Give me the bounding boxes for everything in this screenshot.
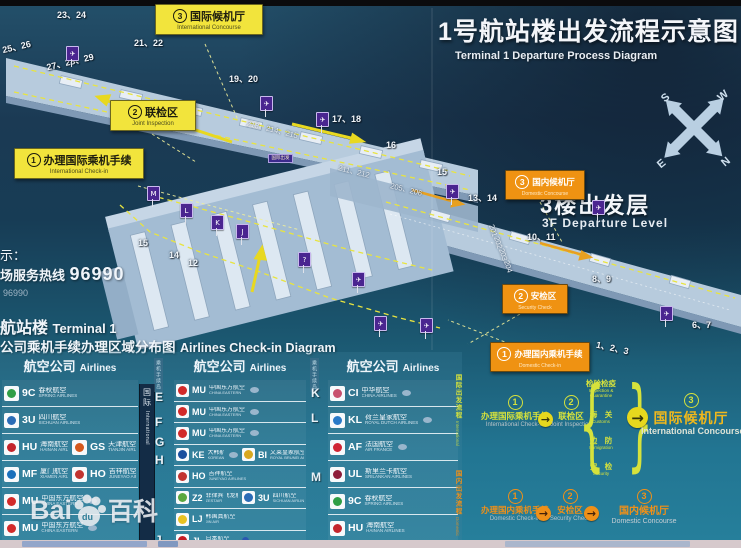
map-label-zh: 国内候机厅 <box>532 177 575 187</box>
airline-code: 9C <box>348 495 361 507</box>
airline-code: MU <box>192 407 206 417</box>
gate-number: 8、9 <box>592 272 611 285</box>
airline-cell: 3U四川航空SICHUAN AIRLINES <box>2 413 138 428</box>
information-sign-icon: ✈ <box>446 184 459 199</box>
gate-number: 6、7 <box>692 318 711 331</box>
airline-code: HO <box>90 468 106 480</box>
header-en: Airlines <box>80 363 117 374</box>
airline-logo-icon <box>176 513 189 526</box>
floor-label-en: 3F Departure Level <box>542 216 668 230</box>
joint-inspection-items: 检验检疫Inspection &Quarantine海 关Customs边 防I… <box>579 380 623 476</box>
brace-item-en: Immigration <box>579 445 623 450</box>
brace-item-en: Customs <box>579 419 623 424</box>
airline-code: Z2 <box>192 493 203 503</box>
brace-item-zh: 海 关 <box>579 411 623 419</box>
airline-name-en: CHINA EASTERN <box>209 434 245 438</box>
airline-name-en: HAINAN AIRLINES <box>366 529 405 534</box>
airline-logo-mark <box>333 497 342 506</box>
airlines-column-header: 航空公司Airlines <box>174 356 306 380</box>
airline-code: MU <box>192 428 206 438</box>
airline-name-en: TIANJIN AIRLINES <box>108 448 136 453</box>
airline-name-en: CHINA EASTERN <box>209 391 245 395</box>
map-label-dom-concourse: 3国内候机厅Domestic Concourse <box>505 170 585 200</box>
map-label-zh: 联检区 <box>145 107 178 119</box>
flow-step-number: 2 <box>564 395 579 410</box>
step-number: 3 <box>515 175 529 189</box>
flow-step-number: 1 <box>508 489 523 504</box>
hotline-label: 场服务热线 <box>0 268 65 283</box>
alliance-badge-icon <box>250 430 259 436</box>
information-sign-icon: ✈ <box>66 46 79 61</box>
flow-step-intl-3: 3国际候机厅International Concourse <box>641 390 741 437</box>
map-label-en: International Concourse <box>159 25 259 32</box>
gate-number: 13、14 <box>468 191 497 204</box>
header-zh: 航空公司 <box>24 359 76 374</box>
airline-names: 荷兰皇家航空ROYAL DUTCH AIRLINES <box>365 414 418 426</box>
airline-logo-mark <box>244 493 253 502</box>
flow-strip-zh: 国内出发流程 <box>454 470 461 515</box>
airline-logo-mark <box>178 429 187 438</box>
airline-row: MU中国东方航空CHINA EASTERN <box>174 380 306 402</box>
airline-names: 中国东方航空CHINA EASTERN <box>209 407 245 417</box>
airline-names: 海南航空HAINAN AIRLINES <box>40 441 68 453</box>
airline-logo-mark <box>178 407 187 416</box>
airline-names: 春秋航空SPRING AIRLINES <box>38 387 77 399</box>
header-zh: 航空公司 <box>194 359 246 374</box>
airline-logo-icon <box>176 448 189 461</box>
airline-cell: MU中国东方航空CHINA EASTERN <box>174 427 306 440</box>
map-label-zh: 国际候机厅 <box>190 11 245 23</box>
divider-label-zh: 国际 <box>142 388 153 408</box>
map-label-dom-security: 2安检区Security Check <box>502 284 568 314</box>
airline-logo-mark <box>7 470 16 479</box>
information-sign-icon: ✈ <box>260 96 273 111</box>
airline-name-en: JUNEYAO AIRLINES <box>109 475 136 480</box>
island-letter-sign: K <box>211 215 224 230</box>
map-label-en: International Check-in <box>18 169 140 176</box>
flow-step-dom-3: 3国内候机厅Domestic Concourse <box>600 486 688 526</box>
airline-code: MU <box>192 385 206 395</box>
airlines-column-header: 航空公司Airlines <box>328 356 458 380</box>
airline-logo-icon <box>4 386 19 401</box>
airline-cell: HU海南航空HAINAN AIRLINES <box>2 440 70 455</box>
airline-name-en: SPRING AIRLINES <box>364 502 403 507</box>
airline-names: 菲律宾飞龙航空ZESTAIR <box>206 493 238 503</box>
gate-number: 17、18 <box>332 112 361 125</box>
flow-step-en: International Concourse <box>641 426 741 436</box>
airline-names: 中国东方航空CHINA EASTERN <box>209 385 245 395</box>
airline-logo-mark <box>333 416 342 425</box>
brace-item-en: Security <box>579 471 623 476</box>
airline-names: 法国航空AIR FRANCE <box>365 441 393 453</box>
information-sign-icon: ✈ <box>660 306 673 321</box>
map-label-joint-inspection: 2联检区Joint Inspection <box>110 100 196 131</box>
airline-cell: UL斯里兰卡航空SRILANKAN AIRLINES <box>328 467 458 482</box>
airline-name-en: CHINA AIRLINES <box>362 394 397 399</box>
airlines-column-header: 航空公司Airlines <box>2 356 138 380</box>
flow-step-zh: 国际候机厅 <box>641 410 741 426</box>
island-letter: L <box>311 411 318 425</box>
airlines-column-2: 航空公司AirlinesMU中国东方航空CHINA EASTERNMU中国东方航… <box>174 356 306 548</box>
airline-logo-icon <box>176 427 189 440</box>
brace-item: 海 关Customs <box>579 411 623 424</box>
airline-code: MF <box>22 468 37 480</box>
step-number: 1 <box>27 153 41 167</box>
airline-code: HU <box>22 441 37 453</box>
alliance-badge-icon <box>398 444 407 450</box>
airline-name-en: HAINAN AIRLINES <box>40 448 68 453</box>
map-label-intl-concourse: 3国际候机厅International Concourse <box>155 4 263 35</box>
airline-logo-icon <box>72 440 87 455</box>
island-letter-sign: L <box>180 203 193 218</box>
airline-row: KL荷兰皇家航空ROYAL DUTCH AIRLINES <box>328 407 458 434</box>
airline-names: 吉祥航空JUNEYAO AIRLINES <box>209 471 247 481</box>
airline-logo-icon <box>330 440 345 455</box>
airline-code: UL <box>348 468 362 480</box>
airline-logo-mark <box>7 443 16 452</box>
airline-cell: KE大韩航空KOREAN AIR <box>174 448 240 461</box>
gate-number: 14 <box>169 250 179 260</box>
gate-number: 23、24 <box>57 8 86 21</box>
airline-names: 吉祥航空JUNEYAO AIRLINES <box>109 468 136 480</box>
map-label-zh: 办理国际乘机手续 <box>44 155 132 167</box>
island-letter-sign: M <box>147 186 160 201</box>
airline-code: KE <box>192 450 205 460</box>
flow-strip-zh: 国际出发流程 <box>454 374 461 419</box>
airline-logo-icon <box>330 386 345 401</box>
airline-cell: BI文莱皇家航空ROYAL BRUNEI AIRLINES <box>240 448 306 461</box>
airline-name-en: JIN AIR <box>206 520 236 524</box>
airline-logo-icon <box>176 470 189 483</box>
airline-logo-mark <box>7 416 16 425</box>
airline-row: AF法国航空AIR FRANCE <box>328 434 458 461</box>
airline-logo-mark <box>7 497 16 506</box>
airline-names: 海南航空HAINAN AIRLINES <box>366 522 405 534</box>
step-number: 2 <box>128 105 142 119</box>
island-letter: F <box>155 415 162 429</box>
brace-item: 检验检疫Inspection &Quarantine <box>579 380 623 399</box>
airlines-column-3: 航空公司AirlinesCI中华航空CHINA AIRLINESKL荷兰皇家航空… <box>328 356 458 542</box>
information-sign-icon: ✈ <box>374 316 387 331</box>
airline-name-en: SRILANKAN AIRLINES <box>365 475 412 480</box>
airline-logo-icon <box>4 467 19 482</box>
airline-code: KL <box>348 414 362 426</box>
airline-name-en: ZESTAIR <box>206 499 238 503</box>
flow-step-number: 2 <box>563 489 578 504</box>
airline-name-en: AIR FRANCE <box>365 448 393 453</box>
island-letter: E <box>155 390 163 404</box>
photo-top-edge <box>0 0 741 6</box>
airline-name-en: KOREAN AIR <box>208 456 224 460</box>
airline-names: 文莱皇家航空ROYAL BRUNEI AIRLINES <box>270 450 304 460</box>
map-label-en: Security Check <box>506 305 564 311</box>
island-letter: G <box>155 435 164 449</box>
airline-name-en: SICHUAN AIRLINES <box>38 421 80 426</box>
airline-logo-mark <box>178 386 187 395</box>
island-letter: K <box>311 386 320 400</box>
flow-step-number: 1 <box>508 395 523 410</box>
gate-number: 21、22 <box>134 36 163 49</box>
airline-row: 9C春秋航空SPRING AIRLINES <box>2 380 138 407</box>
divider-label-en: International <box>144 411 150 445</box>
information-sign-icon: ✈ <box>420 318 433 333</box>
svg-text:du: du <box>82 512 93 522</box>
gate-number: 12 <box>188 258 198 268</box>
airline-names: 天津航空TIANJIN AIRLINES <box>108 441 136 453</box>
map-label-en: Domestic Concourse <box>509 191 581 197</box>
airline-code: LJ <box>192 514 203 524</box>
alliance-badge-icon <box>229 452 238 458</box>
airline-logo-mark <box>178 472 187 481</box>
flow-arrow-icon: → <box>584 506 599 521</box>
airline-names: 四川航空SICHUAN AIRLINES <box>38 414 80 426</box>
flow-step-zh: 国内候机厅 <box>600 506 688 518</box>
step-number: 3 <box>173 9 187 23</box>
island-letter: M <box>311 470 321 484</box>
airline-cell: MU中国东方航空CHINA EASTERN <box>174 405 306 418</box>
airline-names: 四川航空SICHUAN AIRLINES <box>273 493 304 503</box>
alliance-badge-icon <box>402 390 411 396</box>
brace-item: 安 检Security <box>579 463 623 476</box>
airline-cell: AF法国航空AIR FRANCE <box>328 440 458 455</box>
island-letter: H <box>155 453 164 467</box>
alliance-badge-icon <box>250 409 259 415</box>
airline-row: Z2菲律宾飞龙航空ZESTAIR3U四川航空SICHUAN AIRLINES <box>174 488 306 510</box>
information-sign-icon: ✈ <box>316 112 329 127</box>
terminal-name-line: 航站楼 Terminal 1 <box>0 314 117 338</box>
airline-logo-icon <box>330 413 345 428</box>
airline-logo-icon <box>4 521 19 536</box>
airline-logo-mark <box>75 470 84 479</box>
map-label-en: Domestic Check-in <box>494 363 586 369</box>
terminal-name-zh: 航站楼 <box>0 320 48 337</box>
photo-bottom-edge <box>0 540 741 548</box>
brace-item-zh: 边 防 <box>579 437 623 445</box>
gate-number: 15 <box>138 238 148 248</box>
airline-row: UL斯里兰卡航空SRILANKAN AIRLINES <box>328 461 458 488</box>
watermark-baike: 百科 <box>108 492 158 528</box>
airline-row: MF厦门航空XIAMEN AIRLINESHO吉祥航空JUNEYAO AIRLI… <box>2 461 138 488</box>
airline-logo-mark <box>178 493 187 502</box>
header-en: Airlines <box>403 363 440 374</box>
airline-logo-mark <box>178 515 187 524</box>
step-number: 1 <box>497 347 511 361</box>
flow-strip-dom: 国内出发流程Domestic Departure <box>452 470 465 548</box>
airline-logo-icon <box>4 440 19 455</box>
airline-cell: MF厦门航空XIAMEN AIRLINES <box>2 467 70 482</box>
airline-cell: 9C春秋航空SPRING AIRLINES <box>2 386 138 401</box>
flow-step-number: 3 <box>637 489 652 504</box>
airline-row: 9C春秋航空SPRING AIRLINES <box>328 488 458 515</box>
header-zh: 航空公司 <box>347 359 399 374</box>
airline-cell: Z2菲律宾飞龙航空ZESTAIR <box>174 491 240 504</box>
airline-logo-icon <box>176 405 189 418</box>
airline-code: CI <box>348 387 359 399</box>
airline-cell: GS天津航空TIANJIN AIRLINES <box>70 440 138 455</box>
map-label-en: Joint Inspection <box>114 121 192 128</box>
airline-name-en: ROYAL BRUNEI AIRLINES <box>270 456 304 460</box>
brace-item-zh: 安 检 <box>579 463 623 471</box>
airline-cell: 3U四川航空SICHUAN AIRLINES <box>240 491 306 504</box>
airline-cell: KL荷兰皇家航空ROYAL DUTCH AIRLINES <box>328 413 458 428</box>
airline-code: 3U <box>258 493 270 503</box>
airline-logo-icon <box>242 448 255 461</box>
airline-logo-icon <box>72 467 87 482</box>
watermark-bai: Bai <box>30 495 72 526</box>
airline-logo-mark <box>7 524 16 533</box>
airline-logo-icon <box>330 521 345 536</box>
airline-code: BI <box>258 450 267 460</box>
airline-name-en: SICHUAN AIRLINES <box>273 499 304 503</box>
legend-label: 示： <box>0 245 26 264</box>
airline-row: 3U四川航空SICHUAN AIRLINES <box>2 407 138 434</box>
hotline-number-small: 96990 <box>3 288 28 298</box>
terminal-map-page: 1号航站楼出发流程示意图 Terminal 1 Departure Proces… <box>0 0 741 548</box>
gate-number: 10、11 <box>527 230 556 243</box>
airline-name-en: ROYAL DUTCH AIRLINES <box>365 421 418 426</box>
airline-cell: CI中华航空CHINA AIRLINES <box>328 386 458 401</box>
photo-edge-blob <box>22 541 147 547</box>
airline-row: HO吉祥航空JUNEYAO AIRLINES <box>174 466 306 488</box>
map-label-intl-checkin: 1办理国际乘机手续International Check-in <box>14 148 144 179</box>
airline-code: 9C <box>22 387 35 399</box>
airline-logo-icon <box>4 413 19 428</box>
airline-names: 韩国真航空JIN AIR <box>206 514 236 524</box>
gate-number: 16 <box>386 140 396 150</box>
page-title-en: Terminal 1 Departure Process Diagram <box>455 50 657 62</box>
airline-names: 中国东方航空CHINA EASTERN <box>209 428 245 438</box>
airline-logo-icon <box>4 494 19 509</box>
international-departure-sign: 国际出发 <box>268 154 293 163</box>
alliance-badge-icon <box>250 387 259 393</box>
airline-names: 大韩航空KOREAN AIR <box>208 450 224 460</box>
information-sign-icon: ✈ <box>592 200 605 215</box>
airline-logo-mark <box>333 443 342 452</box>
terminal-name-en: Terminal 1 <box>52 321 116 336</box>
brace-item-zh: 检验检疫 <box>579 380 623 388</box>
island-letter-sign: J <box>236 224 249 239</box>
airline-logo-mark <box>333 470 342 479</box>
airline-row: LJ韩国真航空JIN AIR <box>174 509 306 531</box>
map-label-zh: 安检区 <box>531 291 557 301</box>
airline-logo-icon <box>330 494 345 509</box>
airline-code: 3U <box>22 414 35 426</box>
photo-edge-blob <box>158 541 178 547</box>
airline-names: 斯里兰卡航空SRILANKAN AIRLINES <box>365 468 412 480</box>
page-title: 1号航站楼出发流程示意图 <box>438 12 739 48</box>
airline-code: GS <box>90 441 105 453</box>
airline-row: KE大韩航空KOREAN AIRBI文莱皇家航空ROYAL BRUNEI AIR… <box>174 445 306 467</box>
brace-item: 边 防Immigration <box>579 437 623 450</box>
compass-rose-icon: S W N E <box>648 80 740 176</box>
airline-cell: 9C春秋航空SPRING AIRLINES <box>328 494 458 509</box>
airline-code: HO <box>192 471 206 481</box>
header-en: Airlines <box>250 363 287 374</box>
map-label-dom-checkin: 1办理国内乘机手续Domestic Check-in <box>490 342 590 372</box>
airline-cell: HU海南航空HAINAN AIRLINES <box>328 521 458 536</box>
airline-cell: MU中国东方航空CHINA EASTERN <box>174 384 306 397</box>
airline-row: HU海南航空HAINAN AIRLINES <box>328 515 458 542</box>
airline-logo-mark <box>244 450 253 459</box>
airline-code: HU <box>348 522 363 534</box>
airline-logo-mark <box>7 389 16 398</box>
brace-item-en: Quarantine <box>579 393 623 398</box>
flow-step-en: Domestic Concourse <box>600 518 688 526</box>
airline-row: HU海南航空HAINAN AIRLINESGS天津航空TIANJIN AIRLI… <box>2 434 138 461</box>
airline-logo-mark <box>178 450 187 459</box>
airline-names: 厦门航空XIAMEN AIRLINES <box>40 468 68 480</box>
airline-cell: LJ韩国真航空JIN AIR <box>174 513 306 526</box>
airline-name-en: SPRING AIRLINES <box>38 394 77 399</box>
airline-row: CI中华航空CHINA AIRLINES <box>328 380 458 407</box>
airline-name-en: CHINA EASTERN <box>41 529 83 534</box>
step-number: 2 <box>514 289 528 303</box>
hotline-number: 96990 <box>69 264 124 284</box>
map-label-zh: 办理国内乘机手续 <box>514 349 582 359</box>
baidu-watermark: Bai du 百科 <box>30 492 158 528</box>
airline-name-en: JUNEYAO AIRLINES <box>209 477 247 481</box>
baidu-paw-icon: du <box>72 492 106 528</box>
airline-logo-mark <box>333 389 342 398</box>
flow-step-number: 3 <box>684 393 699 408</box>
airline-cell: HO吉祥航空JUNEYAO AIRLINES <box>174 470 306 483</box>
airline-names: 春秋航空SPRING AIRLINES <box>364 495 403 507</box>
airline-name-en: XIAMEN AIRLINES <box>40 475 68 480</box>
flow-strip-intl: 国际出发流程International Departure <box>452 374 465 466</box>
island-strip-header: 乘机手续岛 <box>154 358 163 392</box>
airline-cell: HO吉祥航空JUNEYAO AIRLINES <box>70 467 138 482</box>
airline-logo-mark <box>333 524 342 533</box>
gate-number: 19、20 <box>229 72 258 85</box>
airline-code: AF <box>348 441 362 453</box>
airline-names: 中华航空CHINA AIRLINES <box>362 387 397 399</box>
airline-row: MU中国东方航空CHINA EASTERN <box>174 423 306 445</box>
airline-row: MU中国东方航空CHINA EASTERN <box>174 402 306 424</box>
airline-logo-icon <box>176 384 189 397</box>
information-sign-icon: ✈ <box>352 272 365 287</box>
alliance-badge-icon <box>423 417 432 423</box>
airline-name-en: CHINA EASTERN <box>209 413 245 417</box>
airline-logo-icon <box>330 467 345 482</box>
airline-logo-icon <box>176 491 189 504</box>
hotline-line: 场服务热线 96990 <box>0 264 125 285</box>
photo-edge-blob <box>505 541 690 547</box>
airline-logo-mark <box>75 443 84 452</box>
gate-number: 15 <box>437 167 447 177</box>
airline-logo-icon <box>242 491 255 504</box>
information-sign-icon: ? <box>298 252 311 267</box>
